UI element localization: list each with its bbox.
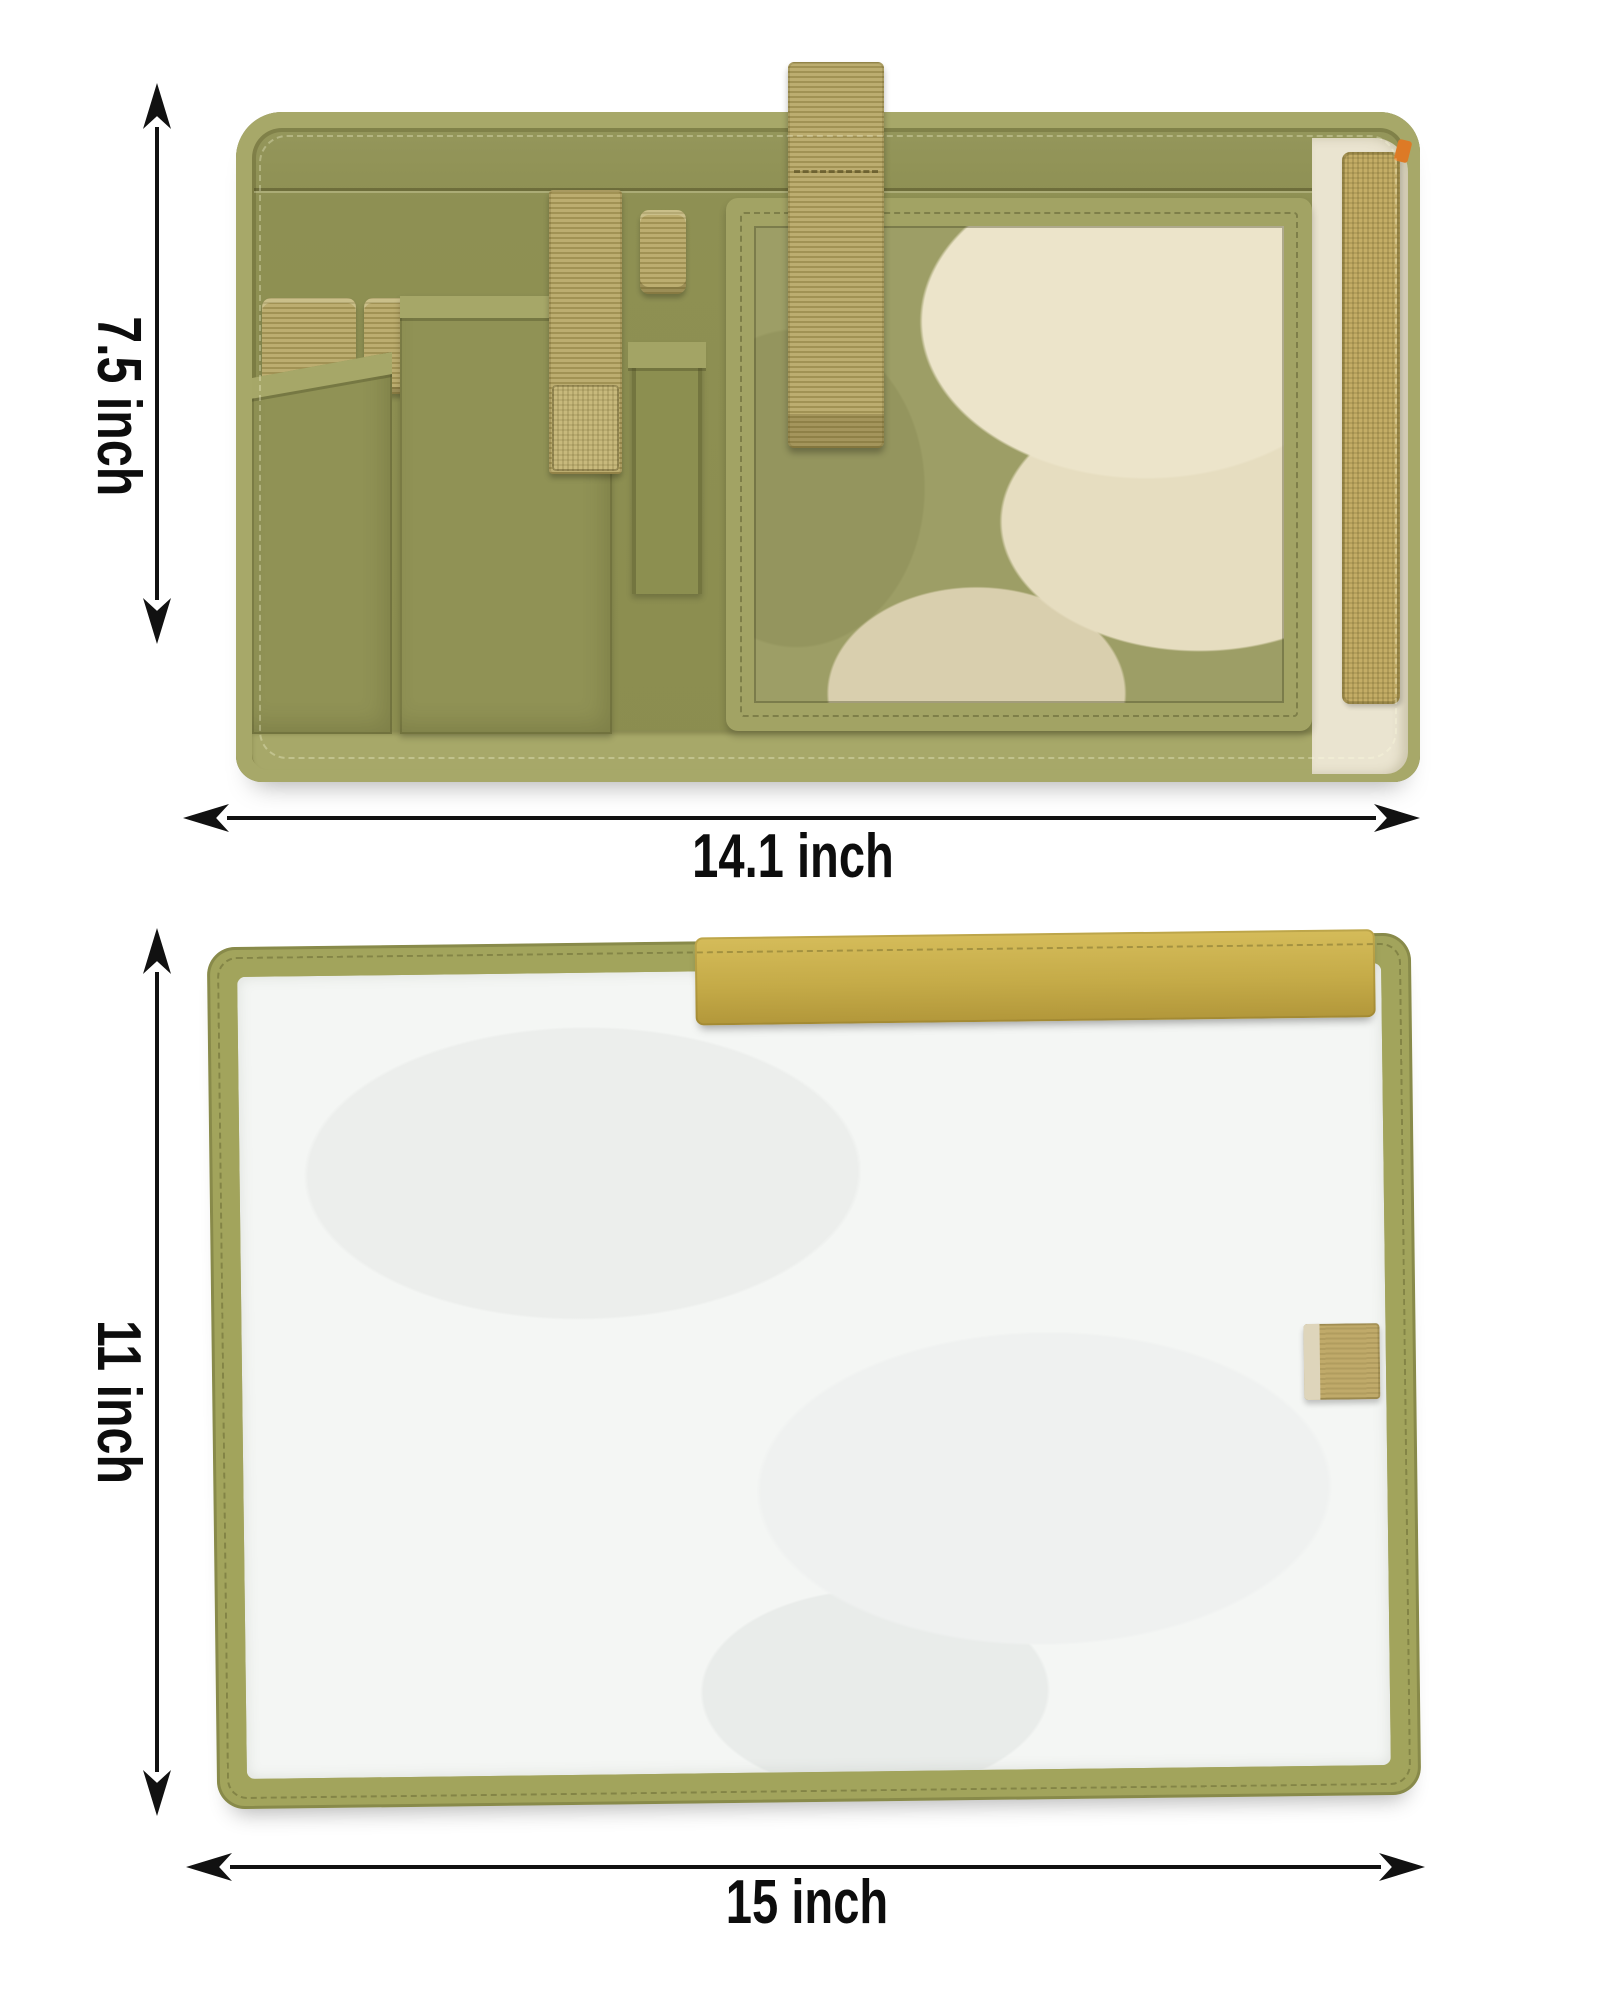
visor-hanging-strap	[788, 62, 884, 448]
strap-stitch-line	[794, 170, 878, 173]
retention-strap-with-velcro	[549, 190, 622, 474]
bottom-width-label: 15 inch	[693, 1872, 921, 1934]
bottom-height-dimension-arrow	[155, 972, 159, 1772]
product-dimension-figure: 7.5 inch 14.1 inch 11 inch 15 inch	[0, 0, 1600, 2000]
pen-sleeve-pocket	[632, 342, 702, 594]
bottom-binding-strip	[252, 730, 1404, 770]
sleeve-binding	[628, 342, 706, 368]
strap-tail	[788, 414, 884, 448]
velcro-strip-vertical	[1342, 152, 1400, 704]
orange-fabric-accent	[1394, 139, 1413, 164]
left-pouch-pocket	[252, 352, 392, 734]
velcro-patch	[552, 385, 619, 471]
organizer-panel-photo	[236, 112, 1420, 782]
top-height-label: 7.5 inch	[87, 316, 149, 488]
clear-cover-panel-photo	[207, 933, 1421, 1810]
top-height-dimension-arrow	[155, 127, 159, 600]
top-width-dimension-arrow	[227, 816, 1376, 820]
elastic-pen-loop	[640, 210, 686, 294]
clear-vinyl-window	[237, 963, 1391, 1779]
velcro-tab-right	[1303, 1323, 1380, 1400]
bottom-height-label: 11 inch	[87, 1316, 149, 1488]
top-width-label: 14.1 inch	[679, 826, 907, 888]
velcro-strip-top	[695, 929, 1376, 1025]
